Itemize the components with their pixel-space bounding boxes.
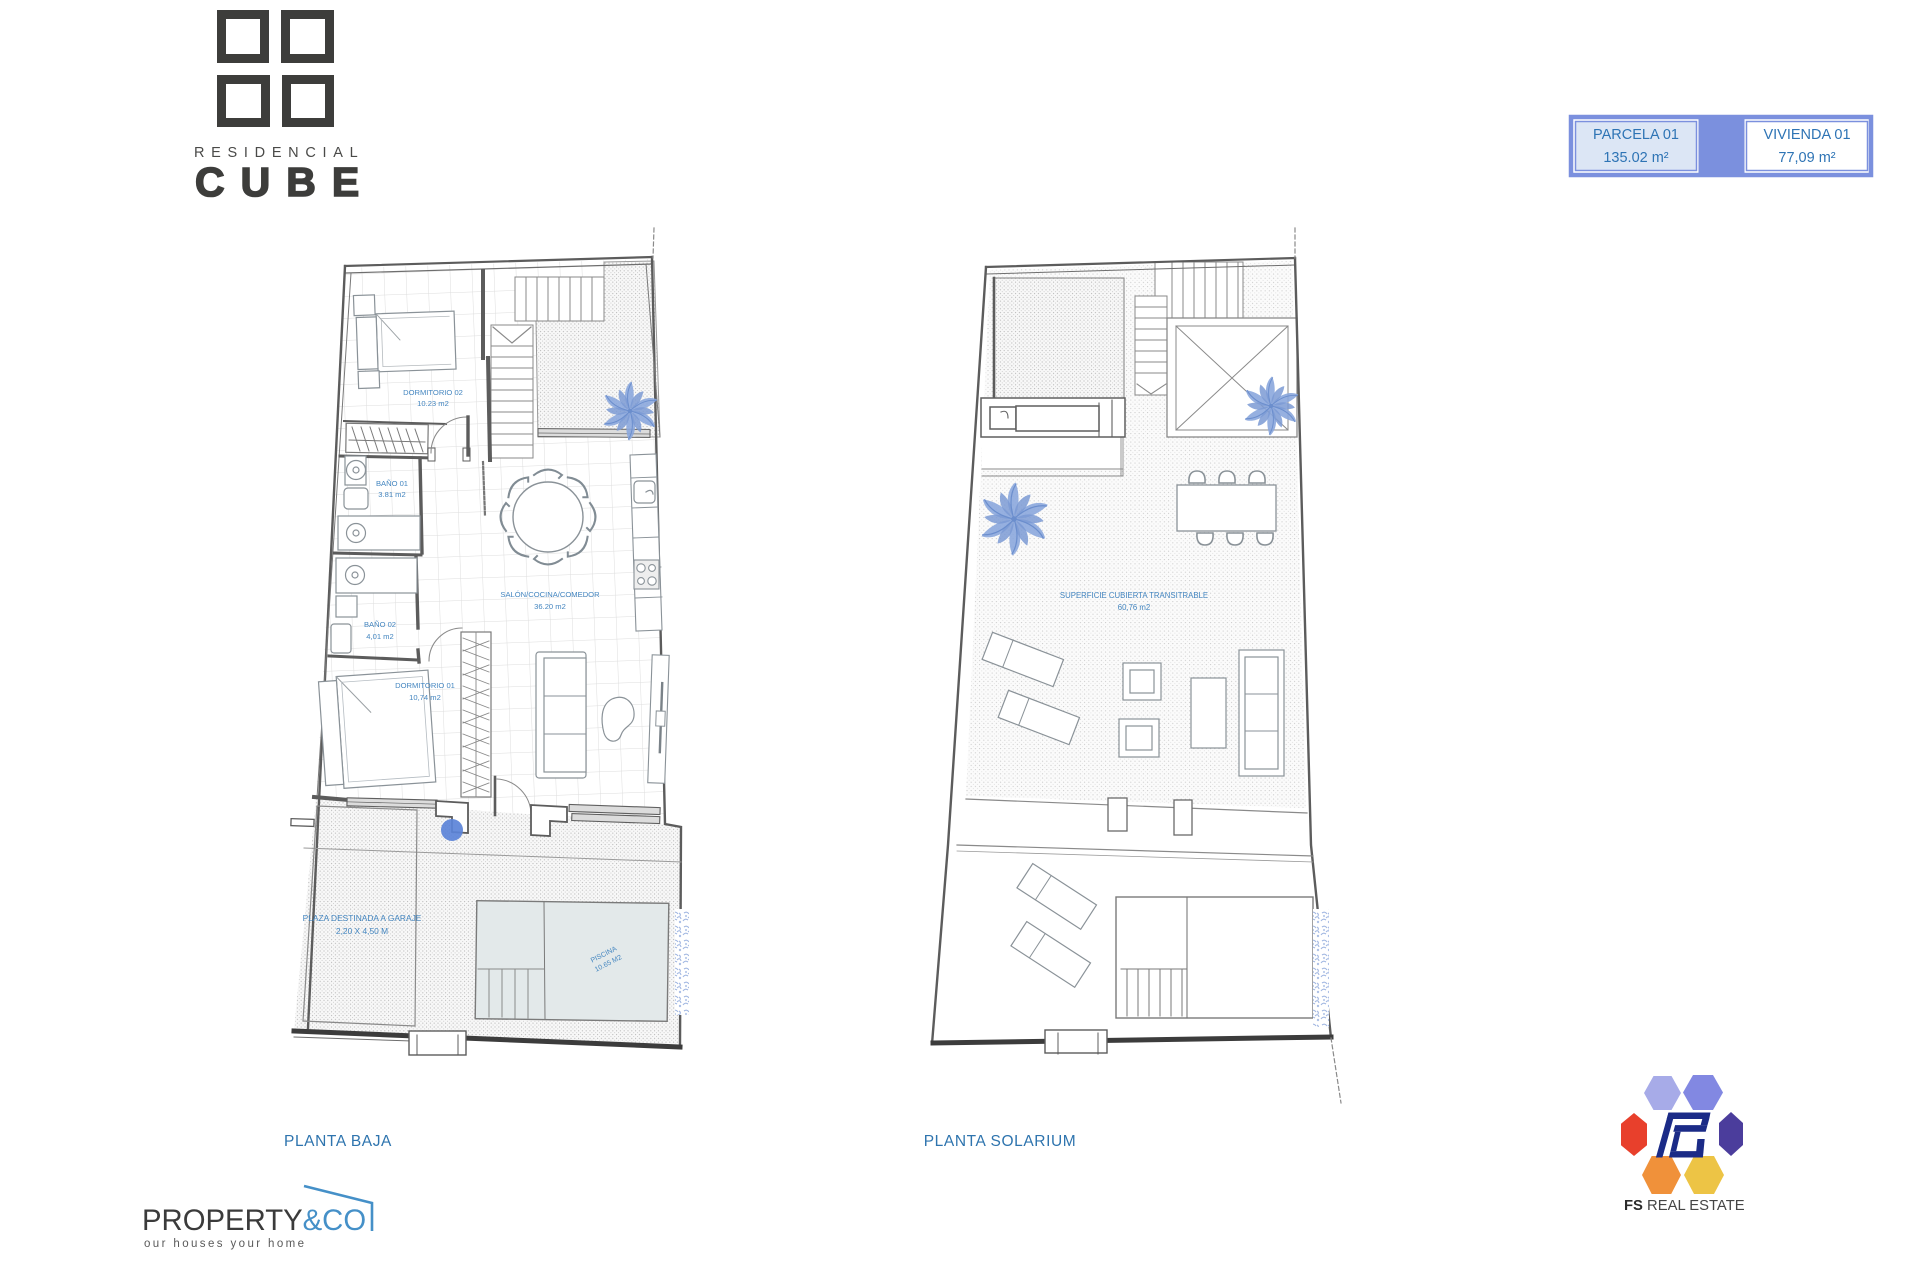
svg-text:CUBE: CUBE: [195, 159, 375, 205]
svg-text:SUPERFICIE CUBIERTA TRANSITRAB: SUPERFICIE CUBIERTA TRANSITRABLE: [1060, 591, 1208, 600]
svg-text:2,20 X 4,50 M: 2,20 X 4,50 M: [336, 926, 388, 936]
svg-text:PLANTA BAJA: PLANTA BAJA: [284, 1133, 392, 1150]
svg-text:DORMITORIO 02: DORMITORIO 02: [403, 388, 463, 397]
svg-text:FS REAL ESTATE: FS REAL ESTATE: [1624, 1198, 1745, 1214]
svg-text:135.02 m²: 135.02 m²: [1603, 150, 1668, 166]
svg-text:3.81 m2: 3.81 m2: [378, 490, 405, 499]
svg-text:60,76 m2: 60,76 m2: [1118, 603, 1151, 612]
svg-text:PROPERTY&CO: PROPERTY&CO: [142, 1204, 366, 1237]
svg-text:10,74 m2: 10,74 m2: [409, 693, 441, 702]
svg-text:10.23 m2: 10.23 m2: [417, 399, 449, 408]
svg-text:DORMITORIO 01: DORMITORIO 01: [395, 681, 455, 690]
svg-text:PLANTA SOLARIUM: PLANTA SOLARIUM: [924, 1133, 1077, 1150]
svg-text:our houses your home: our houses your home: [144, 1238, 306, 1250]
svg-text:PARCELA 01: PARCELA 01: [1593, 127, 1679, 143]
svg-text:36.20 m2: 36.20 m2: [534, 602, 566, 611]
svg-text:77,09 m²: 77,09 m²: [1778, 150, 1835, 166]
svg-text:BAÑO 02: BAÑO 02: [364, 620, 396, 629]
svg-text:BAÑO 01: BAÑO 01: [376, 479, 408, 488]
svg-text:PLAZA DESTINADA A GARAJE: PLAZA DESTINADA A GARAJE: [303, 913, 422, 923]
svg-text:SALÓN/COCINA/COMEDOR: SALÓN/COCINA/COMEDOR: [500, 590, 600, 599]
svg-text:VIVIENDA 01: VIVIENDA 01: [1763, 127, 1850, 143]
svg-text:4,01 m2: 4,01 m2: [366, 632, 393, 641]
